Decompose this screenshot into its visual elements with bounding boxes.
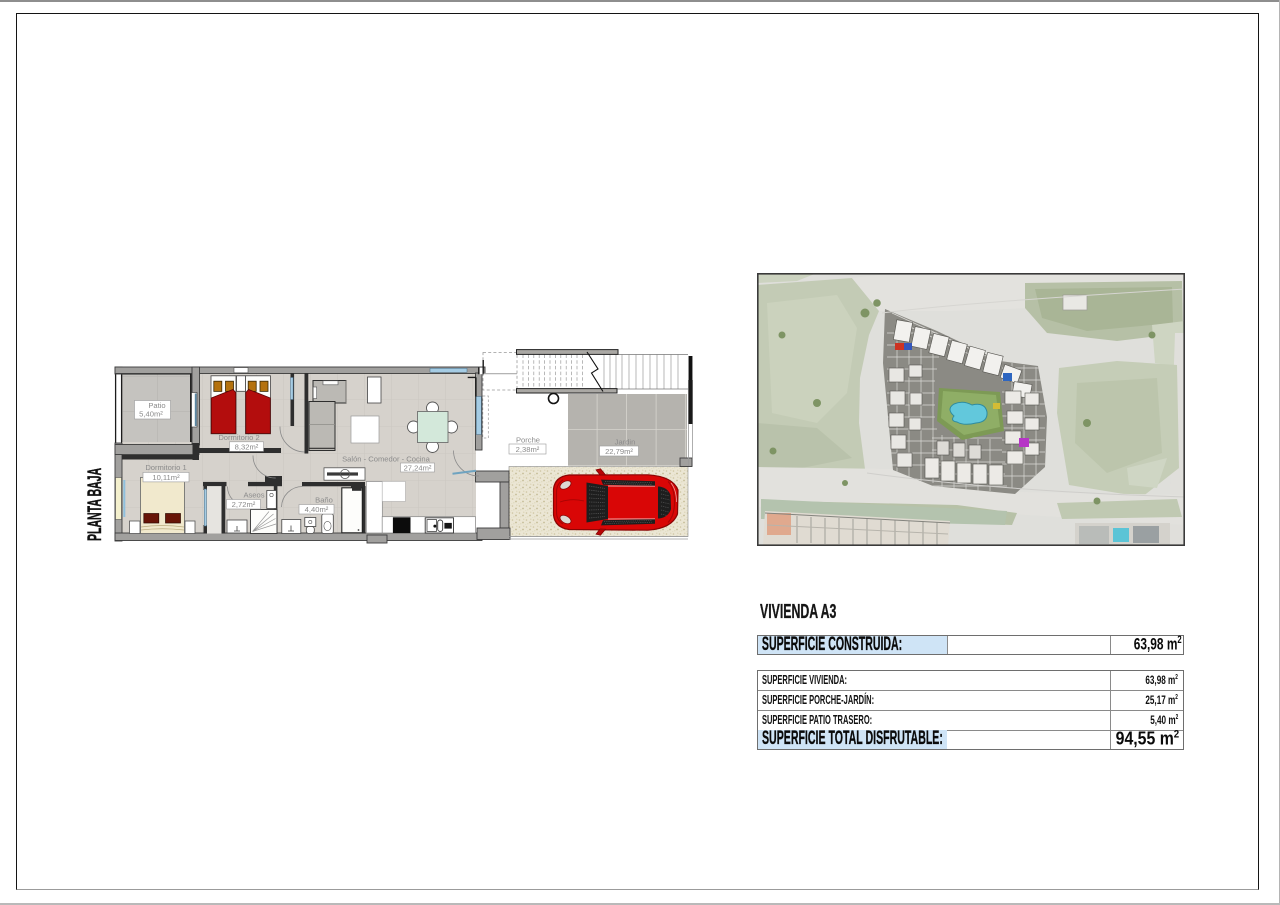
- svg-text:27,24m²: 27,24m²: [404, 463, 432, 472]
- svg-text:Jardin: Jardin: [615, 438, 636, 447]
- svg-text:Baño: Baño: [315, 496, 333, 505]
- svg-text:Dormitorio 2: Dormitorio 2: [218, 433, 259, 442]
- svg-text:Aseos: Aseos: [243, 491, 264, 500]
- svg-text:10,11m²: 10,11m²: [152, 473, 180, 482]
- svg-text:2,72m²: 2,72m²: [232, 500, 256, 509]
- svg-text:5,40m²: 5,40m²: [139, 410, 163, 419]
- svg-text:22,79m²: 22,79m²: [605, 447, 633, 456]
- svg-text:8,32m²: 8,32m²: [235, 442, 259, 451]
- svg-text:4,40m²: 4,40m²: [305, 505, 329, 514]
- svg-text:Salón - Comedor - Cocina: Salón - Comedor - Cocina: [342, 455, 431, 464]
- svg-text:Porche: Porche: [516, 436, 540, 445]
- svg-text:Dormitorio 1: Dormitorio 1: [145, 463, 186, 472]
- svg-text:2,38m²: 2,38m²: [516, 445, 540, 454]
